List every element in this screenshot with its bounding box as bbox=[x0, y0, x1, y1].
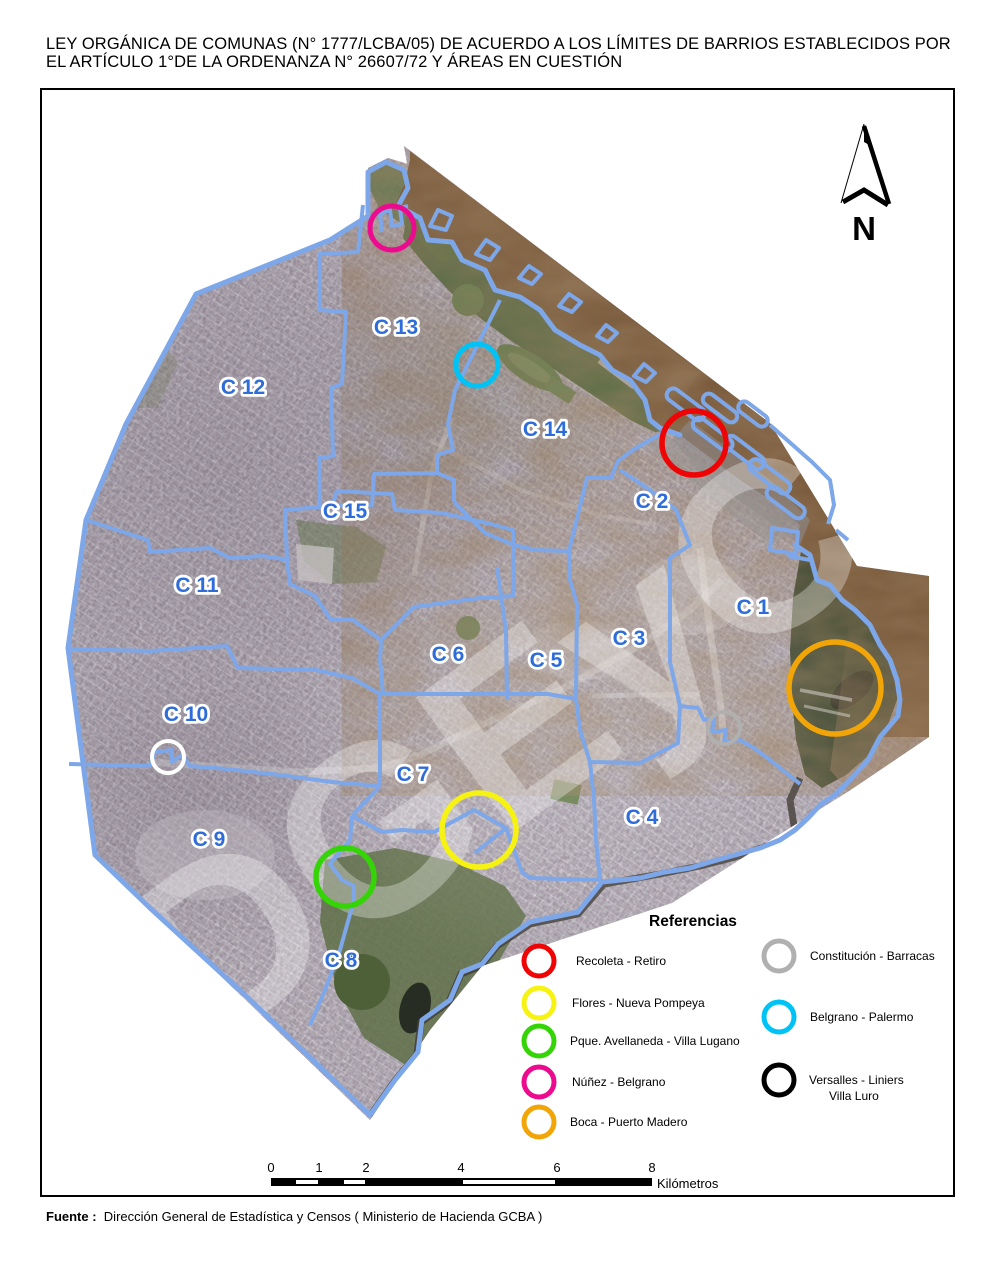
svg-text:2: 2 bbox=[362, 1160, 369, 1175]
svg-text:Flores - Nueva Pompeya: Flores - Nueva Pompeya bbox=[572, 996, 705, 1010]
svg-text:C 7: C 7 bbox=[397, 763, 430, 786]
svg-text:C 3: C 3 bbox=[613, 627, 646, 650]
svg-text:C 12: C 12 bbox=[221, 376, 265, 399]
svg-text:C 10: C 10 bbox=[164, 703, 208, 726]
svg-text:C 6: C 6 bbox=[432, 643, 465, 666]
svg-text:8: 8 bbox=[648, 1160, 655, 1175]
svg-text:Boca - Puerto Madero: Boca - Puerto Madero bbox=[570, 1115, 688, 1129]
svg-text:C 11: C 11 bbox=[175, 574, 219, 597]
svg-text:1: 1 bbox=[315, 1160, 322, 1175]
svg-text:C 14: C 14 bbox=[523, 418, 568, 441]
svg-text:Kilómetros: Kilómetros bbox=[657, 1176, 719, 1191]
svg-text:C 15: C 15 bbox=[323, 500, 368, 523]
svg-text:Versalles - Liniers: Versalles - Liniers bbox=[809, 1073, 904, 1087]
svg-text:Pque. Avellaneda - Villa Lugan: Pque. Avellaneda - Villa Lugano bbox=[570, 1034, 740, 1048]
svg-text:C 4: C 4 bbox=[626, 806, 659, 829]
svg-text:C 2: C 2 bbox=[636, 490, 669, 513]
svg-text:C 9: C 9 bbox=[193, 828, 226, 851]
svg-text:N: N bbox=[852, 210, 876, 247]
svg-text:Villa Luro: Villa Luro bbox=[829, 1089, 879, 1103]
svg-text:Referencias: Referencias bbox=[649, 913, 737, 930]
svg-text:Belgrano - Palermo: Belgrano - Palermo bbox=[810, 1010, 914, 1024]
svg-text:4: 4 bbox=[457, 1160, 464, 1175]
svg-text:C 5: C 5 bbox=[530, 649, 563, 672]
svg-text:Recoleta - Retiro: Recoleta - Retiro bbox=[576, 954, 666, 968]
svg-text:0: 0 bbox=[267, 1160, 274, 1175]
svg-text:6: 6 bbox=[553, 1160, 560, 1175]
svg-text:Núñez - Belgrano: Núñez - Belgrano bbox=[572, 1075, 666, 1089]
svg-text:C 8: C 8 bbox=[325, 949, 358, 972]
svg-text:Constitución - Barracas: Constitución - Barracas bbox=[810, 949, 935, 963]
svg-text:C 13: C 13 bbox=[374, 316, 418, 339]
svg-text:C 1: C 1 bbox=[737, 596, 770, 619]
